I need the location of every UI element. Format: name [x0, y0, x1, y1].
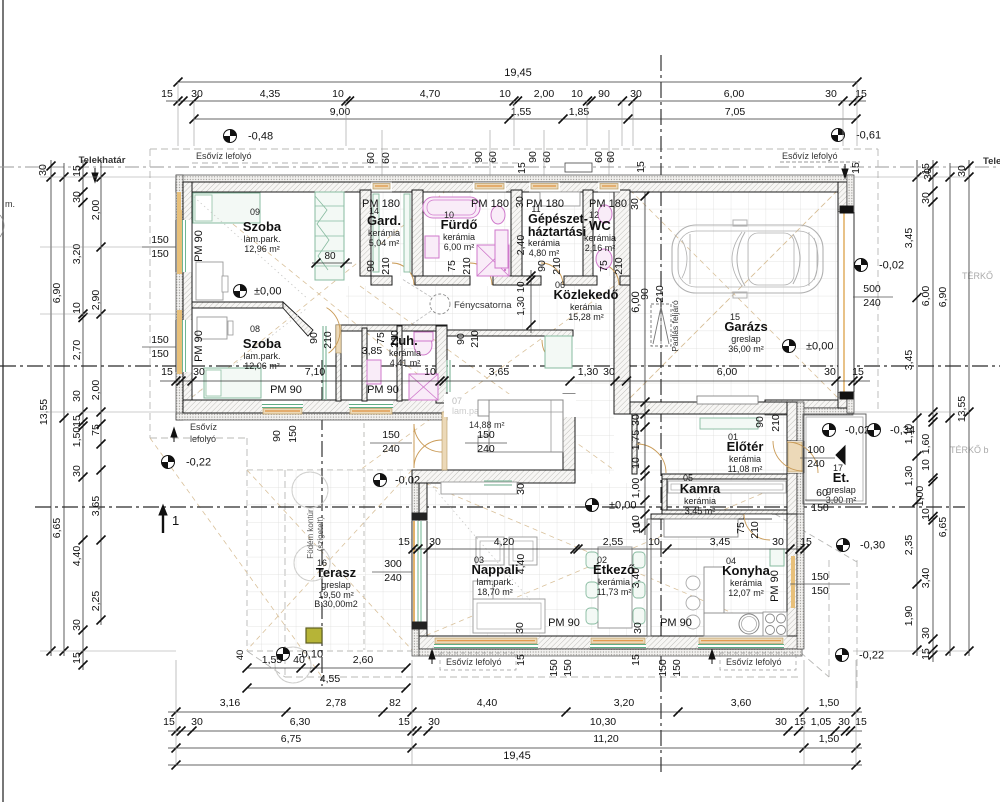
svg-text:100: 100: [807, 444, 825, 456]
svg-text:240: 240: [384, 572, 402, 584]
svg-text:500: 500: [863, 283, 881, 295]
svg-text:07: 07: [452, 396, 462, 406]
svg-text:1,30: 1,30: [903, 466, 915, 487]
svg-text:15: 15: [852, 366, 864, 378]
svg-text:Esővíz: Esővíz: [190, 422, 218, 432]
svg-text:6,00: 6,00: [717, 366, 738, 378]
svg-text:-0,02: -0,02: [845, 425, 870, 437]
svg-text:±0,00: ±0,00: [806, 341, 833, 353]
svg-text:150: 150: [382, 429, 400, 441]
svg-text:15: 15: [161, 88, 173, 100]
svg-text:1,55: 1,55: [262, 654, 283, 666]
svg-text:m.: m.: [5, 199, 15, 209]
svg-text:6,65: 6,65: [51, 518, 63, 539]
svg-text:10: 10: [499, 88, 511, 100]
svg-text:Kamra: Kamra: [680, 481, 721, 496]
svg-text:kerámia: kerámia: [584, 233, 616, 243]
svg-text:10: 10: [648, 536, 660, 548]
svg-text:4,80 m²: 4,80 m²: [529, 248, 560, 258]
svg-text:210: 210: [469, 330, 481, 348]
svg-text:150: 150: [151, 348, 169, 360]
svg-text:30: 30: [630, 414, 642, 426]
svg-text:75: 75: [446, 260, 458, 272]
svg-text:lam.park.: lam.park.: [476, 577, 513, 587]
svg-text:Esővíz lefolyó: Esővíz lefolyó: [782, 151, 838, 161]
svg-text:kerámia: kerámia: [730, 578, 762, 588]
svg-text:Fürdő: Fürdő: [441, 217, 478, 232]
svg-text:60: 60: [487, 151, 499, 163]
svg-text:2,16 m²: 2,16 m²: [585, 243, 616, 253]
svg-text:1,30: 1,30: [578, 366, 599, 378]
svg-text:7,10: 7,10: [305, 366, 326, 378]
svg-text:210: 210: [380, 257, 392, 275]
svg-text:kerámia: kerámia: [368, 228, 400, 238]
svg-text:3,65: 3,65: [489, 366, 510, 378]
svg-text:B:30,00m2: B:30,00m2: [314, 599, 358, 609]
svg-text:-0,02: -0,02: [395, 475, 420, 487]
svg-text:30: 30: [429, 536, 441, 548]
svg-text:1,85: 1,85: [569, 106, 590, 118]
svg-text:30: 30: [603, 366, 615, 378]
svg-text:36,00 m²: 36,00 m²: [728, 344, 764, 354]
svg-text:kerámia: kerámia: [443, 232, 475, 242]
svg-text:150: 150: [657, 659, 669, 677]
svg-text:150: 150: [811, 585, 829, 597]
svg-text:2,25: 2,25: [90, 591, 102, 612]
svg-text:Gard.: Gard.: [367, 213, 401, 228]
svg-text:1,50: 1,50: [819, 733, 840, 745]
svg-text:4,55: 4,55: [320, 673, 341, 685]
svg-text:4,70: 4,70: [420, 88, 441, 100]
svg-text:6,90: 6,90: [51, 283, 63, 304]
svg-text:150: 150: [477, 429, 495, 441]
svg-text:18,70 m²: 18,70 m²: [477, 587, 513, 597]
svg-text:PM 90: PM 90: [270, 384, 302, 396]
svg-text:3,60: 3,60: [731, 697, 752, 709]
svg-text:30: 30: [514, 622, 526, 634]
svg-text:PM 90: PM 90: [367, 384, 399, 396]
svg-text:90: 90: [271, 430, 283, 442]
svg-text:Étkező: Étkező: [593, 562, 635, 577]
svg-text:kerámia: kerámia: [528, 238, 560, 248]
svg-text:210: 210: [749, 521, 761, 539]
svg-text:11,20: 11,20: [593, 733, 619, 745]
svg-text:PM 90: PM 90: [193, 230, 205, 262]
svg-text:1,90: 1,90: [903, 606, 915, 627]
svg-text:30: 30: [629, 198, 641, 210]
svg-text:TÉRKŐ: TÉRKŐ: [962, 271, 993, 281]
svg-text:1,60: 1,60: [920, 434, 932, 455]
svg-text:15: 15: [71, 652, 83, 664]
svg-text:210: 210: [654, 285, 666, 303]
svg-text:30: 30: [191, 716, 203, 728]
svg-text:210: 210: [322, 331, 334, 349]
svg-text:30: 30: [956, 165, 968, 177]
svg-text:2,35: 2,35: [903, 535, 915, 556]
svg-text:15: 15: [635, 161, 647, 173]
svg-text:1,30: 1,30: [516, 296, 527, 316]
svg-text:90: 90: [455, 333, 467, 345]
svg-text:3,45: 3,45: [903, 228, 915, 249]
svg-text:PM 90: PM 90: [193, 330, 205, 362]
svg-text:150: 150: [811, 502, 829, 514]
svg-text:150: 150: [811, 571, 829, 583]
svg-text:PM 90: PM 90: [660, 617, 692, 629]
svg-text:WC: WC: [589, 218, 611, 233]
svg-text:Garázs: Garázs: [724, 319, 767, 334]
svg-text:15: 15: [850, 162, 862, 174]
svg-text:30: 30: [71, 619, 83, 631]
svg-text:10: 10: [630, 457, 642, 469]
svg-text:30: 30: [515, 483, 527, 495]
svg-text:PM 90: PM 90: [769, 570, 781, 602]
svg-text:10: 10: [332, 88, 344, 100]
svg-text:PM 180: PM 180: [589, 198, 627, 210]
svg-text:PM 90: PM 90: [548, 617, 580, 629]
svg-text:75: 75: [375, 332, 387, 344]
svg-text:-0,02: -0,02: [879, 260, 904, 272]
svg-text:30: 30: [825, 88, 837, 100]
svg-text:150: 150: [151, 248, 169, 260]
svg-text:PM 180: PM 180: [471, 198, 509, 210]
svg-text:40: 40: [235, 650, 246, 661]
svg-text:2,78: 2,78: [326, 697, 347, 709]
svg-text:lefolyó: lefolyó: [190, 434, 216, 444]
svg-text:15: 15: [516, 162, 528, 174]
svg-text:90: 90: [536, 260, 548, 272]
svg-text:3,85: 3,85: [362, 345, 383, 357]
svg-text:30: 30: [922, 168, 934, 180]
svg-text:-0,61: -0,61: [856, 130, 881, 142]
svg-text:300: 300: [384, 558, 402, 570]
svg-text:82: 82: [389, 697, 401, 709]
svg-text:30: 30: [775, 716, 787, 728]
svg-text:11,73 m²: 11,73 m²: [597, 587, 632, 597]
svg-text:90: 90: [598, 88, 610, 100]
svg-text:15,28 m²: 15,28 m²: [568, 312, 604, 322]
svg-text:PM 180: PM 180: [362, 198, 400, 210]
svg-text:Et.: Et.: [833, 470, 850, 485]
svg-text:kerámia: kerámia: [389, 348, 421, 358]
svg-text:1: 1: [172, 513, 179, 528]
svg-text:1,00: 1,00: [630, 478, 642, 499]
svg-text:4,40: 4,40: [477, 697, 498, 709]
svg-text:40: 40: [293, 654, 305, 666]
svg-text:2,00: 2,00: [90, 380, 102, 401]
svg-text:150: 150: [548, 659, 560, 677]
svg-text:30: 30: [630, 88, 642, 100]
svg-text:6,00 m²: 6,00 m²: [444, 242, 475, 252]
svg-text:19,45: 19,45: [503, 750, 531, 762]
svg-text:Nappali: Nappali: [472, 562, 519, 577]
svg-text:4,41 m²: 4,41 m²: [390, 358, 421, 368]
svg-text:60: 60: [365, 152, 377, 164]
svg-text:2,60: 2,60: [353, 654, 374, 666]
svg-text:90: 90: [639, 288, 651, 300]
svg-text:Közlekedő: Közlekedő: [553, 287, 618, 302]
svg-text:1,05: 1,05: [811, 716, 832, 728]
svg-text:2,00: 2,00: [534, 88, 555, 100]
svg-text:30: 30: [920, 627, 932, 639]
svg-text:150: 150: [671, 659, 683, 677]
svg-text:90: 90: [527, 151, 539, 163]
svg-text:75: 75: [598, 260, 610, 272]
svg-text:1,00: 1,00: [914, 486, 926, 507]
svg-text:(szigetelt): (szigetelt): [316, 516, 325, 551]
svg-text:2,90: 2,90: [90, 290, 102, 311]
svg-text:Telekhatár: Telekhatár: [983, 156, 1000, 167]
svg-text:150: 150: [562, 659, 574, 677]
svg-text:1,75: 1,75: [630, 430, 642, 451]
svg-text:greslap: greslap: [826, 485, 856, 495]
svg-text:90: 90: [365, 260, 377, 272]
svg-text:150: 150: [287, 425, 299, 443]
svg-text:Esővíz lefolyó: Esővíz lefolyó: [726, 657, 782, 667]
svg-text:60: 60: [816, 487, 828, 499]
svg-text:6,90: 6,90: [937, 287, 949, 308]
svg-text:Előtér: Előtér: [727, 439, 764, 454]
svg-text:10: 10: [71, 302, 83, 314]
svg-text:90: 90: [308, 332, 320, 344]
svg-text:4,35: 4,35: [260, 88, 281, 100]
svg-text:6,00: 6,00: [920, 286, 932, 307]
svg-text:15: 15: [515, 654, 527, 666]
svg-text:10: 10: [424, 366, 436, 378]
svg-text:15: 15: [920, 648, 932, 660]
svg-text:3,45: 3,45: [903, 350, 915, 371]
svg-text:lam.park.: lam.park.: [243, 234, 280, 244]
svg-text:lam.park.: lam.park.: [243, 351, 280, 361]
svg-text:15: 15: [71, 415, 83, 427]
svg-text:12,96 m²: 12,96 m²: [244, 244, 280, 254]
svg-text:-0,30: -0,30: [860, 540, 885, 552]
svg-text:7,05: 7,05: [725, 106, 746, 118]
svg-text:30: 30: [824, 366, 836, 378]
svg-text:kerámia: kerámia: [729, 454, 761, 464]
svg-text:Esővíz lefolyó: Esővíz lefolyó: [196, 151, 252, 161]
svg-text:80: 80: [324, 251, 336, 262]
svg-text:3,40: 3,40: [920, 568, 932, 589]
svg-text:3,65: 3,65: [90, 496, 102, 517]
svg-text:30: 30: [920, 192, 932, 204]
svg-text:-0,48: -0,48: [248, 131, 273, 143]
svg-text:75: 75: [735, 522, 747, 534]
svg-text:10: 10: [920, 459, 932, 471]
svg-text:Terasz: Terasz: [316, 565, 357, 580]
svg-text:08: 08: [250, 324, 260, 334]
svg-text:greslap: greslap: [731, 334, 761, 344]
svg-text:210: 210: [551, 257, 563, 275]
svg-text:15: 15: [630, 654, 642, 666]
svg-text:6,75: 6,75: [281, 733, 302, 745]
svg-text:13,55: 13,55: [956, 396, 968, 422]
svg-text:2,00: 2,00: [90, 200, 102, 221]
svg-text:6,00: 6,00: [724, 88, 745, 100]
svg-text:4,40: 4,40: [515, 554, 527, 575]
svg-text:9,00: 9,00: [330, 106, 351, 118]
svg-text:30: 30: [428, 716, 440, 728]
svg-text:10: 10: [516, 281, 527, 293]
svg-text:12,06 m²: 12,06 m²: [244, 361, 280, 371]
svg-text:2,40: 2,40: [515, 235, 527, 256]
svg-text:30: 30: [191, 88, 203, 100]
svg-text:Esővíz lefolyó: Esővíz lefolyó: [446, 657, 502, 667]
svg-text:210: 210: [770, 414, 782, 432]
svg-text:4,40: 4,40: [71, 546, 83, 567]
svg-text:11,08 m²: 11,08 m²: [728, 464, 763, 474]
svg-text:5,04 m²: 5,04 m²: [369, 238, 400, 248]
svg-text:10: 10: [920, 508, 932, 520]
svg-text:10,30: 10,30: [590, 716, 616, 728]
svg-text:60: 60: [593, 151, 605, 163]
svg-text:Padlás feljáró: Padlás feljáró: [670, 300, 680, 352]
svg-text:90: 90: [754, 416, 766, 428]
svg-text:240: 240: [477, 443, 495, 455]
svg-text:greslap: greslap: [321, 580, 351, 590]
svg-text:30: 30: [71, 390, 83, 402]
svg-text:3,45 m²: 3,45 m²: [685, 506, 716, 516]
svg-text:Szoba: Szoba: [243, 219, 282, 234]
svg-text:75: 75: [90, 424, 102, 436]
svg-text:30: 30: [632, 622, 644, 634]
svg-text:30: 30: [772, 536, 784, 548]
svg-text:6,65: 6,65: [937, 517, 949, 538]
svg-text:90: 90: [473, 151, 485, 163]
svg-text:PM 180: PM 180: [526, 198, 564, 210]
svg-text:15: 15: [398, 716, 410, 728]
svg-text:150: 150: [151, 234, 169, 246]
svg-text:240: 240: [382, 443, 400, 455]
svg-text:3,16: 3,16: [220, 697, 241, 709]
svg-text:±0,00: ±0,00: [609, 500, 636, 512]
svg-text:10: 10: [571, 88, 583, 100]
svg-text:30: 30: [838, 716, 850, 728]
svg-text:15: 15: [161, 366, 173, 378]
svg-text:3,40: 3,40: [630, 568, 642, 589]
svg-text:10: 10: [631, 522, 643, 534]
svg-text:210: 210: [461, 257, 473, 275]
svg-text:±0,00: ±0,00: [254, 286, 281, 298]
svg-text:3,20: 3,20: [614, 697, 635, 709]
svg-text:4,20: 4,20: [494, 536, 515, 548]
svg-text:09: 09: [250, 207, 260, 217]
svg-text:-0,22: -0,22: [186, 457, 211, 469]
svg-text:Konyha: Konyha: [722, 563, 770, 578]
svg-text:1,50: 1,50: [819, 697, 840, 709]
svg-text:2,70: 2,70: [71, 340, 83, 361]
svg-text:1,50: 1,50: [71, 427, 83, 448]
svg-text:6,30: 6,30: [290, 716, 311, 728]
svg-text:Fénycsatorna: Fénycsatorna: [454, 300, 512, 311]
svg-text:15: 15: [398, 536, 410, 548]
svg-text:30: 30: [514, 196, 526, 208]
svg-text:3,45: 3,45: [710, 536, 731, 548]
svg-text:19,45: 19,45: [504, 67, 532, 79]
svg-text:kerámia: kerámia: [570, 302, 602, 312]
svg-text:15: 15: [800, 536, 812, 548]
svg-text:kerámia: kerámia: [684, 496, 716, 506]
svg-text:210: 210: [613, 257, 625, 275]
svg-text:kerámia: kerámia: [598, 577, 630, 587]
svg-text:30: 30: [71, 191, 83, 203]
svg-text:15: 15: [163, 716, 175, 728]
svg-text:30: 30: [37, 164, 49, 176]
svg-text:60: 60: [605, 151, 617, 163]
svg-text:15: 15: [855, 716, 867, 728]
svg-text:Födém kontúr: Födém kontúr: [306, 509, 315, 559]
svg-text:30: 30: [193, 366, 205, 378]
svg-text:háztartási: háztartási: [528, 225, 586, 239]
svg-text:60: 60: [541, 151, 553, 163]
svg-text:30: 30: [71, 465, 83, 477]
svg-text:150: 150: [151, 334, 169, 346]
svg-text:Szoba: Szoba: [243, 336, 282, 351]
svg-text:12,07 m²: 12,07 m²: [728, 588, 764, 598]
svg-text:2,55: 2,55: [603, 536, 624, 548]
svg-text:210: 210: [389, 330, 401, 348]
svg-text:1,10: 1,10: [903, 424, 915, 445]
svg-text:240: 240: [863, 297, 881, 309]
svg-text:240: 240: [807, 458, 825, 470]
svg-text:15: 15: [71, 165, 83, 177]
svg-text:Gépészet-: Gépészet-: [528, 212, 588, 226]
